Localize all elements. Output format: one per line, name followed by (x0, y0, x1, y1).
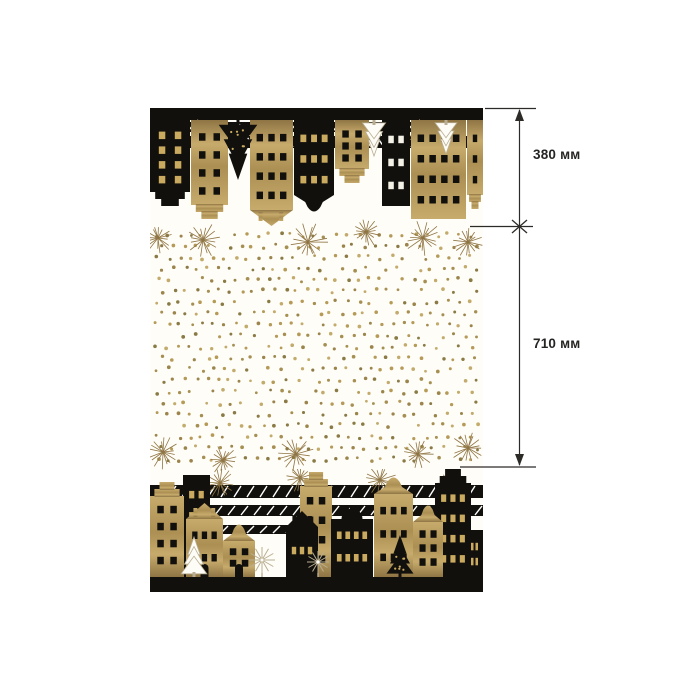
product-image: 380 мм 710 мм (0, 0, 700, 700)
dimension-label-380mm: 380 мм (533, 147, 580, 162)
dimension-label-710mm: 710 мм (533, 336, 580, 351)
top-houses-border-inverted (150, 108, 483, 228)
fabric-panel (150, 108, 483, 592)
bottom-houses-border (150, 469, 483, 592)
